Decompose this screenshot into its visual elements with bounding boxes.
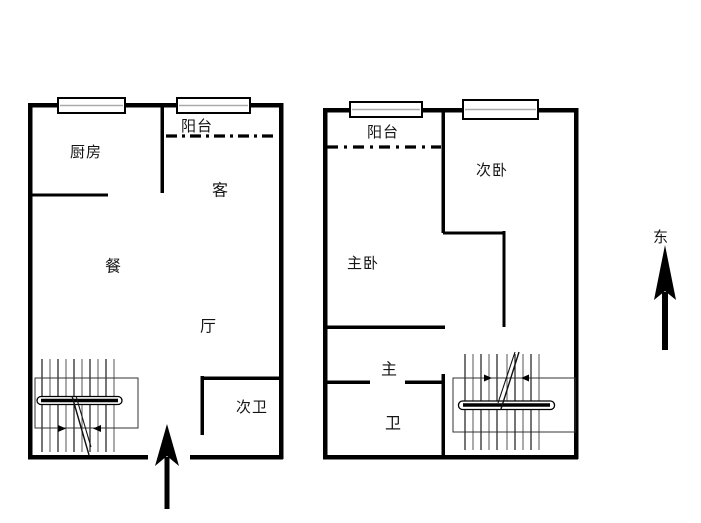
balcony-label: 阳台 xyxy=(367,123,399,141)
master-bedroom-label: 主卧 xyxy=(347,254,379,272)
left-unit-labels: 厨房 阳台 客 餐 厅 次卫 xyxy=(70,117,268,416)
stair-arrowhead xyxy=(58,425,66,432)
stair-arrowhead xyxy=(521,375,529,382)
stair-arrowhead xyxy=(93,425,101,432)
north-arrow xyxy=(654,245,676,350)
kitchen-label: 厨房 xyxy=(70,143,102,161)
master-bath-upper-label: 主 xyxy=(381,360,397,379)
left-staircase xyxy=(35,359,138,455)
right-unit: 阳台 次卧 主卧 主 卫 xyxy=(323,100,578,459)
left-unit-inner-walls xyxy=(30,105,283,435)
hall-label: 厅 xyxy=(200,317,216,336)
compass: 东 xyxy=(653,228,676,350)
left-unit: 厨房 阳台 客 餐 厅 次卫 xyxy=(28,98,283,509)
dining-label: 餐 xyxy=(105,257,121,276)
balcony-label: 阳台 xyxy=(181,117,213,135)
secondary-bedroom-label: 次卧 xyxy=(476,161,508,179)
floor-plan-image: 厨房 阳台 客 餐 厅 次卫 xyxy=(0,0,701,523)
east-label: 东 xyxy=(653,228,669,246)
stair-arrowhead xyxy=(484,375,492,382)
right-unit-labels: 阳台 次卧 主卧 主 卫 xyxy=(347,123,508,433)
right-staircase xyxy=(453,352,575,450)
living-label: 客 xyxy=(212,181,228,200)
master-bath-lower-label: 卫 xyxy=(385,414,401,433)
secondary-bath-label: 次卫 xyxy=(236,398,268,416)
entrance-arrow xyxy=(155,424,179,509)
